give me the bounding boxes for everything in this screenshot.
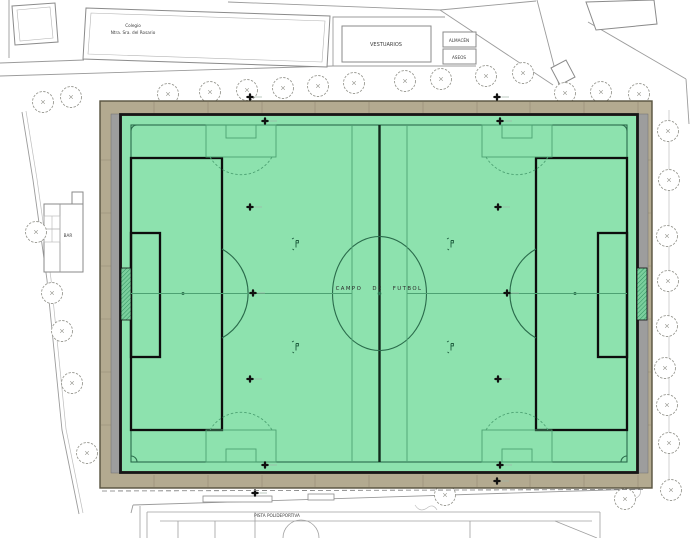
tree-icon xyxy=(308,76,329,97)
football-field xyxy=(100,94,652,495)
bench xyxy=(203,496,272,502)
sprinkler-icon xyxy=(252,490,267,495)
building-topright xyxy=(551,0,657,85)
colegio-label-line2: Ntra. Sra. del Rosario xyxy=(111,30,156,35)
sprinkler-icon xyxy=(494,94,509,99)
site-plan-drawing: Colegio Ntra. Sra. del Rosario VESTUARIO… xyxy=(0,0,696,538)
tree-icon xyxy=(655,358,676,379)
tree-icon xyxy=(657,226,678,247)
tree-icon xyxy=(615,489,636,510)
goal-right xyxy=(637,268,647,320)
tree-icon xyxy=(476,66,497,87)
bench xyxy=(308,494,334,500)
tree-icon xyxy=(344,73,365,94)
tree-icon xyxy=(273,78,294,99)
building-colegio xyxy=(83,8,330,67)
pista-polideportiva-label: PISTA POLIDEPORTIVA xyxy=(254,513,300,518)
building-bar xyxy=(44,192,83,272)
tree-icon xyxy=(33,92,54,113)
bar-label: BAR xyxy=(64,233,73,238)
almacen-label: ALMACÉN xyxy=(449,38,469,43)
tree-icon xyxy=(657,316,678,337)
campo-de-futbol-label: CAMPO DE FUTBOL xyxy=(336,286,423,292)
tree-icon xyxy=(200,82,221,103)
aseos-label: ASEOS xyxy=(452,55,466,60)
tree-icon xyxy=(77,443,98,464)
tree-icon xyxy=(591,82,612,103)
tree-icon xyxy=(26,222,47,243)
sidewalk-edge xyxy=(102,490,645,492)
tree-icon xyxy=(658,271,679,292)
tree-icon xyxy=(659,433,680,454)
vestuarios-label: VESTUARIOS xyxy=(370,42,402,48)
tree-icon xyxy=(431,69,452,90)
tree-icon xyxy=(42,283,63,304)
building-small-topleft xyxy=(12,3,58,45)
pista-polideportiva-court xyxy=(131,489,641,538)
tree-icon xyxy=(513,63,534,84)
site-plan: Colegio Ntra. Sra. del Rosario VESTUARIO… xyxy=(0,0,696,538)
tree-icon xyxy=(62,373,83,394)
tree-icon xyxy=(661,480,682,501)
tree-icon xyxy=(395,71,416,92)
tree-icon xyxy=(657,395,678,416)
tree-icon xyxy=(659,170,680,191)
tree-icon xyxy=(52,321,73,342)
tree-icon xyxy=(658,121,679,142)
colegio-label-line1: Colegio xyxy=(125,23,141,28)
goal-left xyxy=(121,268,131,320)
tree-icon xyxy=(61,87,82,108)
centre-spot xyxy=(378,292,382,296)
